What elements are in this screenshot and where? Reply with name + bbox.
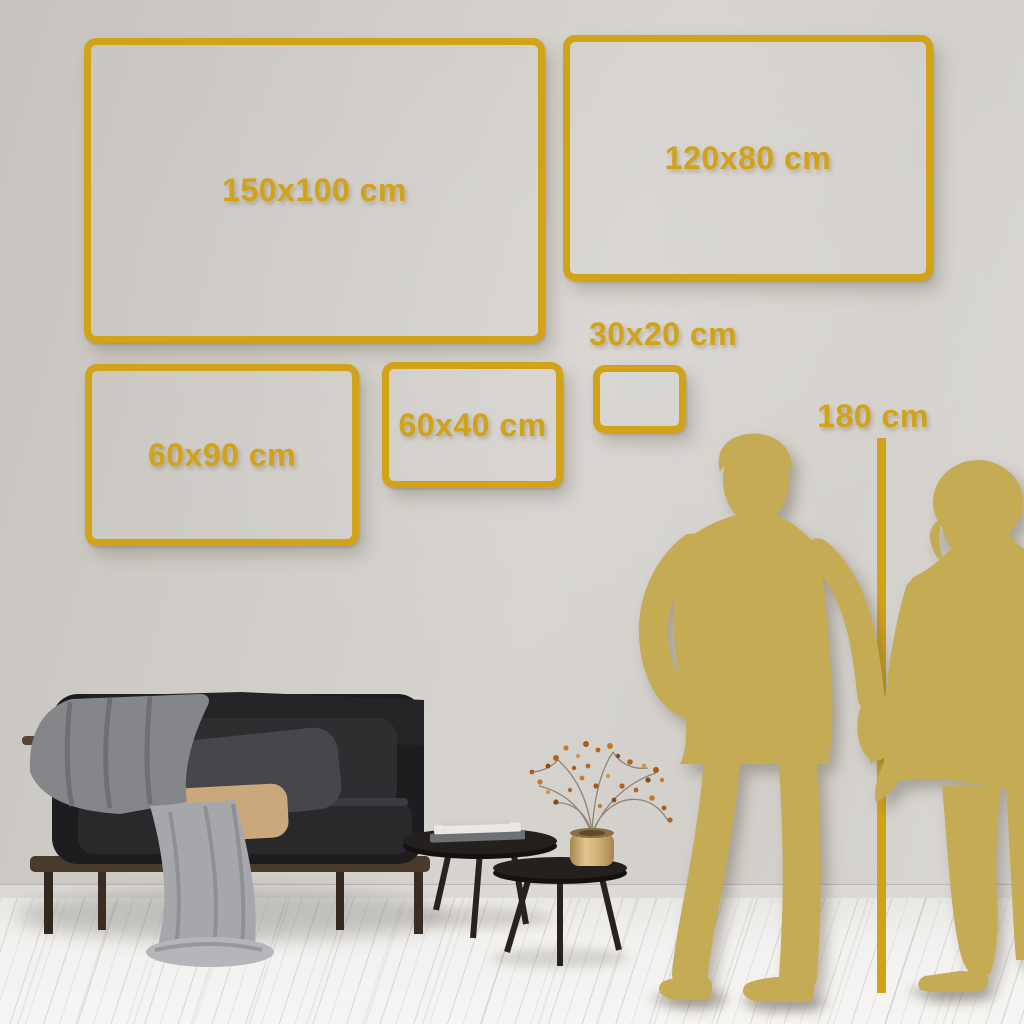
man-shoe xyxy=(743,977,814,1002)
size-frame-30x20 xyxy=(593,365,686,433)
size-frame-120x80: 120x80 cm xyxy=(563,35,933,281)
size-frame-60x40: 60x40 cm xyxy=(382,362,563,488)
height-reference-label: 180 cm xyxy=(773,398,973,435)
man-silhouette xyxy=(653,434,896,1002)
woman-shoe xyxy=(918,971,988,992)
man-shoe xyxy=(659,976,712,1000)
size-frame-60x90: 60x90 cm xyxy=(85,364,359,546)
size-label-120x80: 120x80 cm xyxy=(665,140,831,177)
branch-berries xyxy=(530,741,673,823)
woman-silhouette xyxy=(875,460,1024,992)
size-label-150x100: 150x100 cm xyxy=(222,172,407,209)
size-label-60x40: 60x40 cm xyxy=(398,407,546,444)
size-frame-150x100: 150x100 cm xyxy=(84,38,545,343)
books-stack xyxy=(430,819,525,843)
throw-blanket xyxy=(30,694,209,814)
size-label-60x90: 60x90 cm xyxy=(148,437,296,474)
blanket-pile xyxy=(146,937,274,967)
branch-decor xyxy=(530,752,669,832)
size-label-30x20: 30x20 cm xyxy=(563,316,763,353)
vase xyxy=(570,828,614,866)
